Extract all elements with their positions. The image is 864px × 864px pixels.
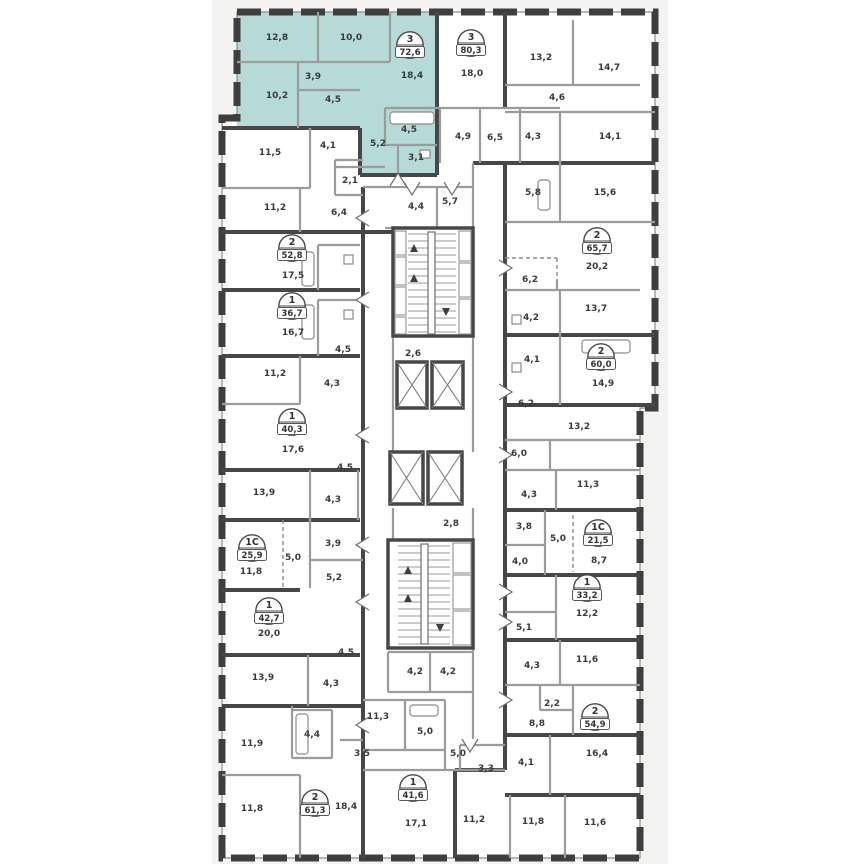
room-area-label: 3,8 [516, 522, 532, 532]
apartment-area: 25,9 [242, 551, 263, 561]
room-area-label: 13,7 [585, 304, 607, 314]
room-area-label: 16,4 [586, 749, 608, 759]
room-area-label: 2,6 [405, 349, 421, 359]
room-area-label: 6,2 [522, 275, 538, 285]
room-area-label: 4,5 [338, 648, 354, 658]
apartment-badge[interactable]: 142,7 [255, 598, 284, 624]
room-area-label: 6,0 [511, 449, 527, 459]
room-area-label: 3,3 [478, 764, 494, 774]
room-area-label: 6,5 [487, 133, 503, 143]
sink-icon [344, 255, 353, 264]
apartment-area: 80,3 [461, 46, 482, 56]
apartment-type: 1 [289, 295, 296, 306]
room-area-label: 4,1 [320, 141, 336, 151]
apartment-type: 1 [584, 577, 591, 588]
apartment-type: 2 [312, 792, 319, 803]
room-area-label: 4,5 [401, 125, 417, 135]
room-area-label: 13,2 [568, 422, 590, 432]
apartment-badge[interactable]: 265,7 [583, 228, 612, 254]
room-area-label: 5,2 [326, 573, 342, 583]
room-area-label: 18,0 [461, 69, 483, 79]
room-area-label: 14,1 [599, 132, 621, 142]
room-area-label: 3,9 [305, 72, 321, 82]
apartment-type: 1 [410, 777, 417, 788]
room-area-label: 11,3 [577, 480, 599, 490]
apartment-badge[interactable]: 1C25,9 [238, 535, 267, 561]
room-area-label: 6,2 [518, 399, 534, 409]
apartment-badge[interactable]: 261,3 [301, 790, 330, 816]
room-area-label: 3,1 [408, 153, 424, 163]
apartment-badge[interactable]: 252,8 [278, 235, 307, 261]
room-area-label: 3,9 [325, 539, 341, 549]
floor-plan-svg: 12,810,03,918,410,24,54,55,23,118,013,21… [0, 0, 864, 864]
apartment-badge-selected[interactable]: 372,6 [396, 32, 425, 58]
room-area-label: 4,3 [525, 132, 541, 142]
room-area-label: 14,9 [592, 379, 614, 389]
room-area-label: 4,4 [408, 202, 424, 212]
room-area-label: 4,3 [521, 490, 537, 500]
room-area-label: 17,5 [282, 271, 304, 281]
apartment-type: 2 [289, 237, 296, 248]
room-area-label: 17,6 [282, 445, 304, 455]
room-area-label: 4,2 [440, 667, 456, 677]
sink-icon [512, 315, 521, 324]
room-area-label: 4,5 [337, 463, 353, 473]
apartment-type: 1C [245, 537, 259, 548]
apartment-type: 3 [407, 34, 414, 45]
room-area-label: 5,7 [442, 197, 458, 207]
room-area-label: 4,9 [455, 132, 471, 142]
room-area-label: 16,7 [282, 328, 304, 338]
room-area-label: 11,5 [259, 148, 281, 158]
apartment-area: 60,0 [591, 360, 612, 370]
room-area-label: 14,7 [598, 63, 620, 73]
room-area-label: 11,6 [584, 818, 606, 828]
room-area-label: 2,1 [342, 176, 358, 186]
room-area-label: 13,9 [252, 673, 274, 683]
room-area-label: 13,2 [530, 53, 552, 63]
apartment-area: 65,7 [587, 244, 608, 254]
room-area-label: 5,8 [525, 188, 541, 198]
apartment-badge[interactable]: 133,2 [573, 575, 602, 601]
apartment-badge[interactable]: 141,6 [399, 775, 428, 801]
apartment-area: 52,8 [282, 251, 303, 261]
room-area-label: 4,3 [323, 679, 339, 689]
apartment-area: 61,3 [305, 806, 326, 816]
room-area-label: 12,8 [266, 33, 288, 43]
room-area-label: 5,1 [516, 623, 532, 633]
apartment-type: 1C [591, 522, 605, 533]
stairwell-lower [388, 540, 473, 648]
sink-icon [512, 363, 521, 372]
apartment-badge[interactable]: 380,3 [457, 30, 486, 56]
room-area-label: 18,4 [335, 802, 357, 812]
room-area-label: 4,5 [335, 345, 351, 355]
room-area-label: 11,2 [264, 203, 286, 213]
apartment-badge[interactable]: 254,9 [581, 704, 610, 730]
sink-icon [344, 310, 353, 319]
room-area-label: 20,0 [258, 629, 280, 639]
apartment-area: 36,7 [282, 309, 303, 319]
apartment-area: 41,6 [403, 791, 424, 801]
apartment-type: 3 [468, 32, 475, 43]
room-area-label: 4,1 [518, 758, 534, 768]
room-area-label: 11,2 [264, 369, 286, 379]
room-area-label: 11,3 [367, 712, 389, 722]
room-area-label: 4,5 [325, 95, 341, 105]
room-area-label: 8,8 [529, 719, 545, 729]
room-area-label: 2,2 [544, 699, 560, 709]
room-area-label: 4,0 [512, 557, 528, 567]
room-area-label: 4,3 [524, 661, 540, 671]
room-area-label: 10,0 [340, 33, 362, 43]
bathtub-icon [410, 705, 438, 716]
apartment-badge[interactable]: 140,3 [278, 409, 307, 435]
room-area-label: 11,8 [522, 817, 544, 827]
room-area-label: 4,2 [407, 667, 423, 677]
apartment-badge[interactable]: 136,7 [278, 293, 307, 319]
room-area-label: 2,8 [443, 519, 459, 529]
room-area-label: 11,6 [576, 655, 598, 665]
room-area-label: 4,1 [524, 355, 540, 365]
room-area-label: 3,5 [354, 749, 370, 759]
room-area-label: 20,2 [586, 262, 608, 272]
room-area-label: 11,8 [241, 804, 263, 814]
room-area-label: 5,0 [550, 534, 566, 544]
apartment-type: 2 [594, 230, 601, 241]
room-area-label: 5,0 [417, 727, 433, 737]
room-area-label: 5,2 [370, 139, 386, 149]
room-area-label: 4,3 [324, 379, 340, 389]
floor-plan-screenshot: 12,810,03,918,410,24,54,55,23,118,013,21… [0, 0, 864, 864]
apartment-type: 2 [592, 706, 599, 717]
room-area-label: 15,6 [594, 188, 616, 198]
room-area-label: 4,2 [523, 313, 539, 323]
apartment-area: 21,5 [588, 536, 609, 546]
room-area-label: 10,2 [266, 91, 288, 101]
apartment-type: 1 [289, 411, 296, 422]
room-area-label: 11,9 [241, 739, 263, 749]
stairwell-upper [393, 228, 473, 336]
apartment-badge[interactable]: 1C21,5 [584, 520, 613, 546]
room-area-label: 5,0 [285, 553, 301, 563]
room-area-label: 8,7 [591, 556, 607, 566]
apartment-badge[interactable]: 260,0 [587, 344, 616, 370]
room-area-label: 18,4 [401, 71, 423, 81]
apartment-area: 72,6 [400, 48, 421, 58]
room-area-label: 4,4 [304, 730, 320, 740]
room-area-label: 5,0 [450, 749, 466, 759]
room-area-label: 17,1 [405, 819, 427, 829]
room-area-label: 11,2 [463, 815, 485, 825]
room-area-label: 11,8 [240, 567, 262, 577]
apartment-type: 1 [266, 600, 273, 611]
apartment-area: 33,2 [577, 591, 598, 601]
apartment-area: 42,7 [259, 614, 280, 624]
room-area-label: 4,3 [325, 495, 341, 505]
apartment-area: 54,9 [585, 720, 606, 730]
room-area-label: 13,9 [253, 488, 275, 498]
room-area-label: 6,4 [331, 208, 347, 218]
room-area-label: 12,2 [576, 609, 598, 619]
bathtub-icon [390, 112, 434, 124]
apartment-area: 40,3 [282, 425, 303, 435]
room-area-label: 4,6 [549, 93, 565, 103]
apartment-type: 2 [598, 346, 605, 357]
